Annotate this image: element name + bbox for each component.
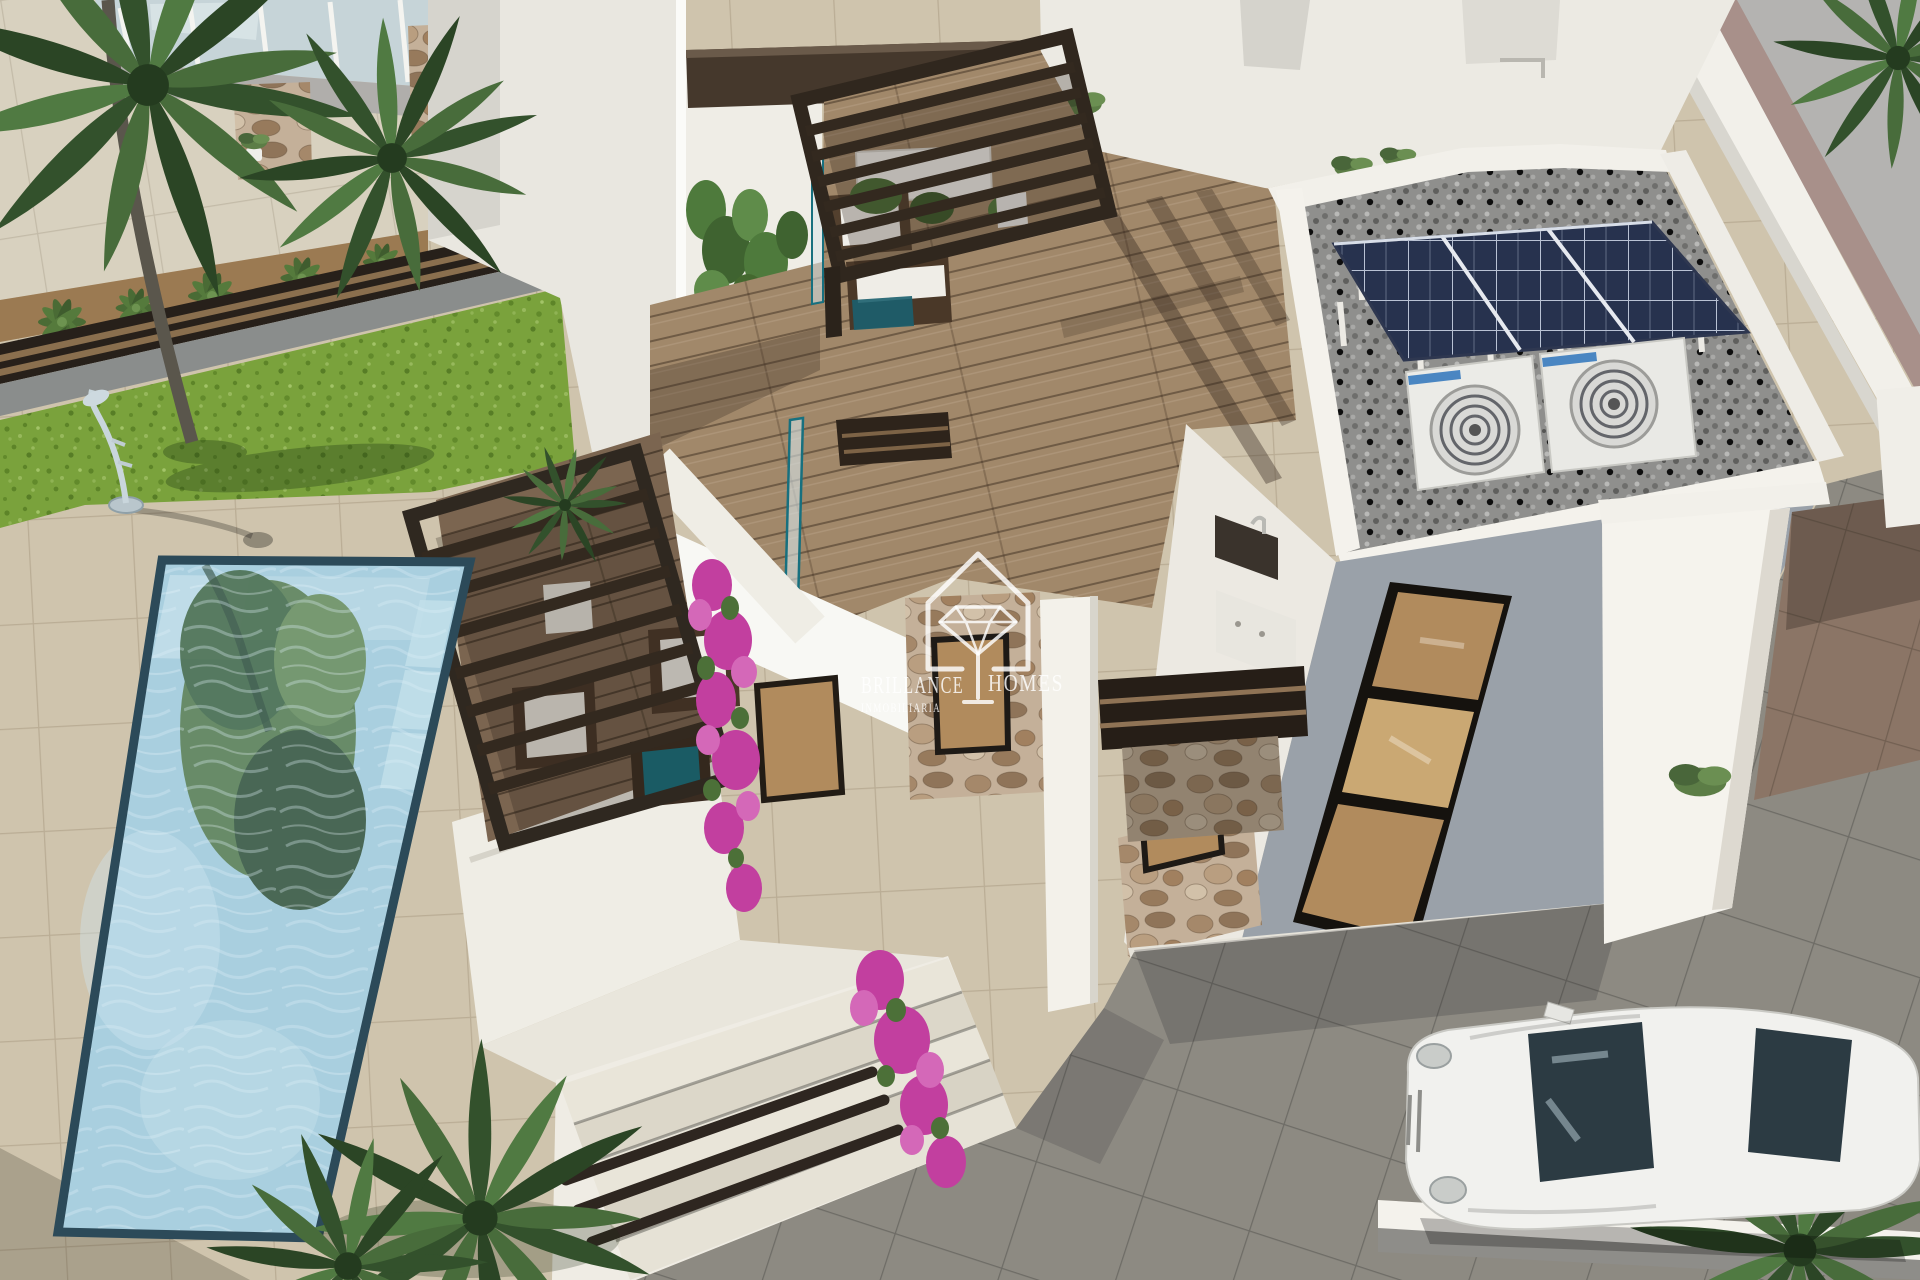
headlight: [1417, 1044, 1451, 1068]
villa-render: BRILLANCE HOMES INMOBILIARIA: [0, 0, 1920, 1280]
deck-slat-bench: [836, 412, 952, 466]
brand-subtitle: INMOBILIARIA: [861, 700, 941, 715]
brand-name-right: HOMES: [988, 671, 1064, 697]
pergola-post: [824, 266, 842, 338]
white-pillar: [1040, 596, 1098, 1012]
brand-name-left: BRILLANCE: [861, 673, 964, 699]
render-canvas: BRILLANCE HOMES INMOBILIARIA: [0, 0, 1920, 1280]
entrance-door: [757, 678, 842, 800]
ac-unit: [1540, 338, 1696, 472]
ac-unit: [1406, 356, 1544, 490]
headlight: [1430, 1177, 1466, 1203]
teal-glass-table: [852, 296, 914, 330]
